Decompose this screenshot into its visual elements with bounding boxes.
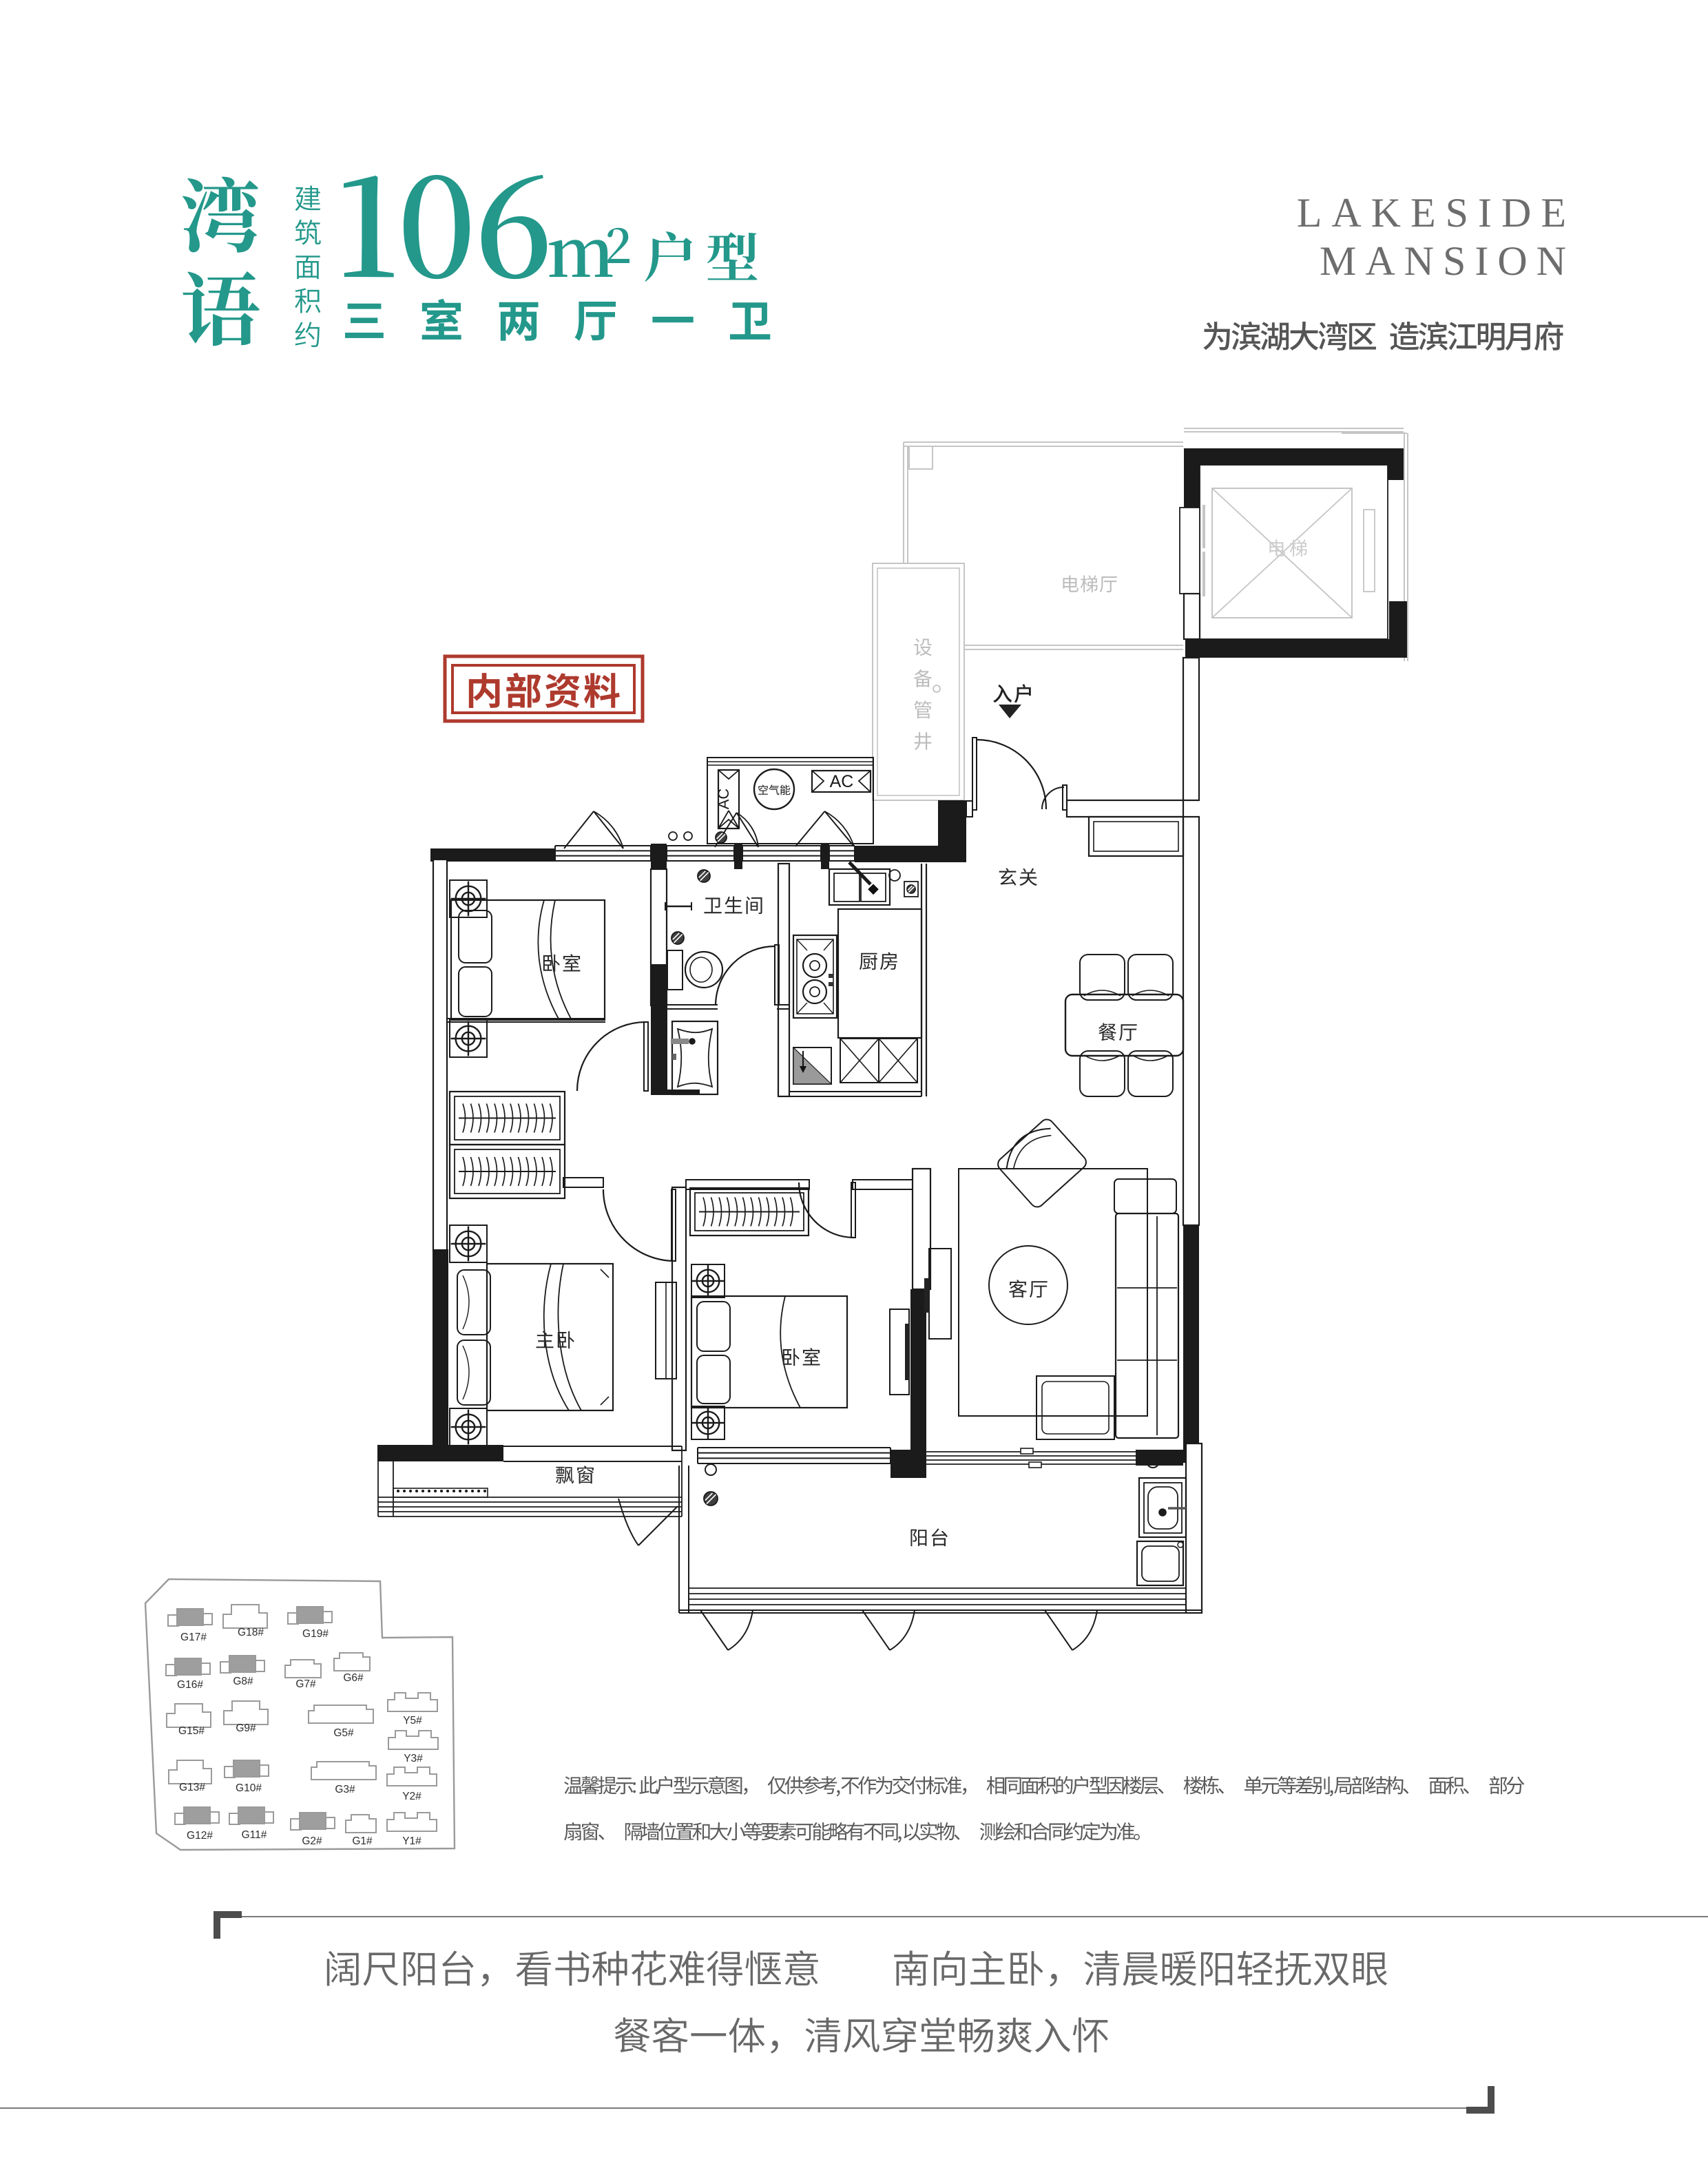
svg-text:Y2#: Y2# bbox=[402, 1791, 421, 1802]
svg-text:Y3#: Y3# bbox=[404, 1753, 423, 1764]
svg-text:Y1#: Y1# bbox=[402, 1835, 421, 1847]
svg-text:AC: AC bbox=[715, 789, 732, 810]
svg-text:G3#: G3# bbox=[335, 1784, 355, 1795]
svg-text:G1#: G1# bbox=[352, 1835, 373, 1847]
svg-text:G11#: G11# bbox=[242, 1829, 267, 1841]
svg-text:G5#: G5# bbox=[333, 1727, 354, 1739]
svg-text:G19#: G19# bbox=[302, 1628, 329, 1640]
svg-text:LAKESIDE: LAKESIDE bbox=[1297, 190, 1576, 236]
svg-text:G9#: G9# bbox=[236, 1722, 256, 1734]
svg-text:G13#: G13# bbox=[179, 1782, 205, 1793]
svg-text:G15#: G15# bbox=[178, 1725, 205, 1737]
svg-text:Y5#: Y5# bbox=[403, 1715, 422, 1727]
svg-text:G17#: G17# bbox=[180, 1632, 207, 1643]
svg-text:MANSION: MANSION bbox=[1320, 238, 1575, 284]
svg-text:G7#: G7# bbox=[295, 1678, 316, 1690]
svg-text:G10#: G10# bbox=[236, 1782, 262, 1794]
svg-text:G6#: G6# bbox=[343, 1672, 364, 1684]
svg-text:G12#: G12# bbox=[187, 1830, 213, 1842]
svg-text:G18#: G18# bbox=[238, 1627, 264, 1638]
svg-text:AC: AC bbox=[830, 772, 854, 791]
svg-text:G8#: G8# bbox=[233, 1676, 253, 1687]
svg-text:G2#: G2# bbox=[302, 1835, 322, 1847]
svg-text:G16#: G16# bbox=[177, 1679, 203, 1691]
